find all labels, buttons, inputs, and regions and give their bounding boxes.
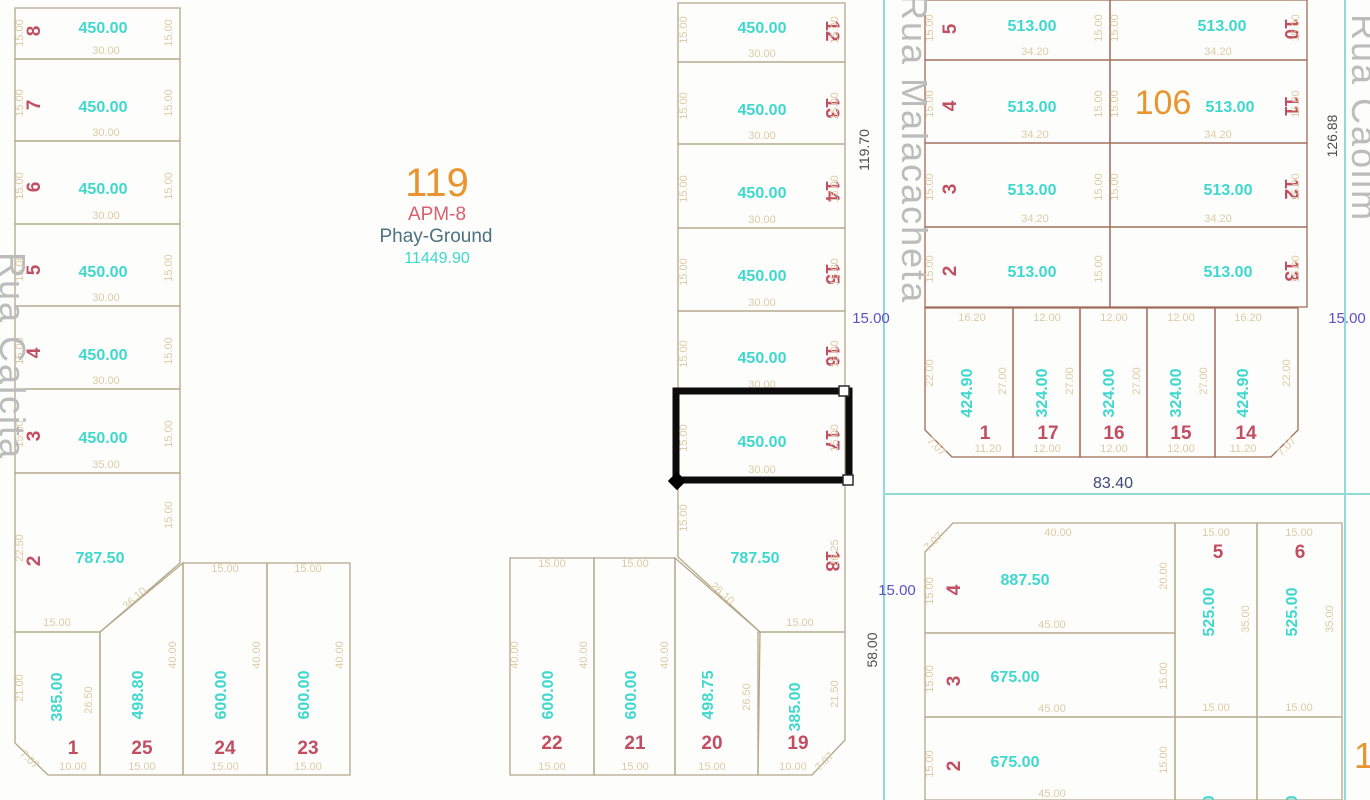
annotation-11970-0: 119.70 [856, 129, 872, 171]
b106-lot11-dim-0: 34.20 [1204, 129, 1232, 141]
rm-lot17-dim-2: 12.00 [1033, 443, 1061, 455]
rb-lot6-dim-0: 15.00 [1285, 527, 1313, 539]
rm-lot14-area-value: 424.90 [1235, 368, 1252, 417]
annotation-5800-1: 58.00 [864, 632, 880, 667]
b119-lot13-dim-2: 15.00 [829, 92, 841, 120]
b119-lot24-dim-2: 40.00 [251, 641, 263, 669]
b119-lot1-dim-3: 7.07 [17, 748, 41, 772]
rb-partial-b-area-value: 525.00 [1284, 795, 1301, 800]
b119-lot25-number: 25 [131, 738, 153, 759]
rb-lot3-dim-0: 15.00 [924, 665, 936, 693]
b119-lot21-dim-2: 40.00 [578, 641, 590, 669]
b119-lot4-area-value: 450.00 [79, 347, 128, 364]
b119-lot25-area-value: 498.80 [130, 670, 147, 719]
block-119-sub-label-0: APM-8 [408, 204, 466, 225]
b106-lot13-dim-0: 15.00 [1290, 255, 1302, 283]
b119-lot18-area-value: 787.50 [731, 550, 780, 567]
b119-lot21-number: 21 [624, 733, 646, 754]
b119-lot3-dim-0: 35.00 [92, 459, 120, 471]
rm-lot1-dim-2: 27.00 [997, 367, 1009, 395]
b119-lot7-dim-2: 15.00 [163, 89, 175, 117]
block-106-number-label: 106 [1135, 84, 1192, 122]
block-119-sub-label-1: Phay-Ground [379, 226, 492, 247]
b119-lot6-dim-1: 15.00 [14, 172, 26, 200]
street-name-0: Rua Calcita [0, 252, 33, 460]
b119-lot3-dim-2: 15.00 [163, 420, 175, 448]
b106-lot2-number: 2 [940, 266, 961, 277]
b119-lot4-dim-0: 30.00 [92, 375, 120, 387]
b106-lot12-dim-2: 15.00 [1290, 173, 1302, 201]
rb-lot2-number: 2 [944, 761, 965, 772]
b106-lot2-dim-1: 15.00 [1093, 255, 1105, 283]
b119-lot17-area-value: 450.00 [738, 434, 787, 451]
rb-lot2-dim-1: 15.00 [1158, 746, 1170, 774]
b119-lot20-dim-0: 15.00 [698, 761, 726, 773]
rm-lot16-number: 16 [1103, 423, 1124, 444]
rm-lot15-area-value: 324.00 [1168, 368, 1185, 417]
b106-lot12-dim-0: 34.20 [1204, 213, 1232, 225]
b119-lot7-dim-0: 30.00 [92, 127, 120, 139]
rb-lot6-area-value: 525.00 [1284, 587, 1301, 636]
rb-lot3-area-value: 675.00 [991, 669, 1040, 686]
rb-lot3-dim-2: 45.00 [1038, 703, 1066, 715]
b106-lot10-dim-2: 15.00 [1290, 14, 1302, 42]
b106-lot4-area-value: 513.00 [1008, 99, 1057, 116]
b119-lot24-dim-1: 15.00 [211, 761, 239, 773]
rb-lot2-dim-2: 45.00 [1038, 788, 1066, 800]
b119-lot19-dim-1: 21.50 [829, 680, 841, 708]
rb-lot5-area-value: 525.00 [1201, 587, 1218, 636]
b119-lot14-dim-1: 15.00 [678, 175, 690, 203]
b119-lot24-number: 24 [214, 738, 236, 759]
b119-lot13-area-value: 450.00 [738, 102, 787, 119]
b119-lot23-dim-0: 15.00 [294, 563, 322, 575]
b119-lot19-area-value: 385.00 [787, 682, 804, 731]
b119-lot20-dim-1: 40.00 [659, 641, 671, 669]
b119-lot20-dim-2: 26.50 [741, 683, 753, 711]
rm-lot17-area-value: 324.00 [1034, 368, 1051, 417]
rm-lot16-area-value: 324.00 [1101, 368, 1118, 417]
b119-lot2-dim-1: 15.00 [163, 501, 175, 529]
b106-lot13-area-value: 513.00 [1204, 264, 1253, 281]
rb-lot5-number: 5 [1213, 542, 1224, 563]
rb-lot6-number: 6 [1295, 542, 1306, 563]
b106-lot10-area-value: 513.00 [1198, 18, 1247, 35]
rb-lot4-area-value: 887.50 [1001, 572, 1050, 589]
block-119-number-label: 119 [405, 161, 469, 205]
rb-lot2-dim-0: 15.00 [924, 750, 936, 778]
b119-lot1-dim-0: 21.00 [14, 674, 26, 702]
annotation-1500-4: 15.00 [1328, 310, 1366, 327]
b119-lot6-number: 6 [24, 182, 45, 193]
b119-lot19-dim-2: 7.07 [813, 750, 837, 774]
rm-lot16-dim-1: 27.00 [1131, 367, 1143, 395]
b119-lot2-number: 2 [24, 556, 45, 567]
b119-lot22-dim-2: 40.00 [509, 641, 521, 669]
b119-lot22-area-value: 600.00 [540, 670, 557, 719]
annotation-1500-3: 15.00 [852, 310, 890, 327]
rm-lot17-dim-0: 12.00 [1033, 312, 1061, 324]
b119-lot2-dim-3: 15.00 [43, 617, 71, 629]
b119-lot6-dim-2: 15.00 [163, 172, 175, 200]
rb-partial-b[interactable] [1257, 717, 1342, 800]
rm-lot1-dim-3: 11.20 [975, 443, 1002, 455]
rm-lot15-number: 15 [1170, 423, 1192, 444]
b106-lot10-dim-1: 15.00 [1109, 14, 1121, 42]
b119-lot12-dim-2: 15.00 [829, 16, 841, 44]
rm-lot15-dim-1: 27.00 [1198, 367, 1210, 395]
b106-lot11-dim-1: 15.00 [1109, 90, 1121, 118]
b119-lot19-dim-0: 10.00 [779, 761, 807, 773]
b119-lot8-number: 8 [24, 26, 45, 37]
b119-lot25-dim-0: 15.00 [128, 761, 156, 773]
b106-lot3-dim-2: 15.00 [1093, 173, 1105, 201]
b119-lot5-dim-2: 15.00 [163, 254, 175, 282]
b119-lot15-area-value: 450.00 [738, 268, 787, 285]
rm-lot15-dim-2: 12.00 [1167, 443, 1195, 455]
b106-lot4-dim-2: 15.00 [1093, 90, 1105, 118]
rm-lot16-dim-0: 12.00 [1100, 312, 1128, 324]
b119-lot21-area-value: 600.00 [623, 670, 640, 719]
b119-lot6-dim-0: 30.00 [92, 210, 120, 222]
b119-lot15-dim-1: 15.00 [678, 258, 690, 286]
b119-lot7-dim-1: 15.00 [14, 89, 26, 117]
b106-lot3-number: 3 [940, 184, 961, 195]
selection-handle-square-1[interactable] [843, 475, 853, 485]
b119-lot25-dim-1: 40.00 [167, 641, 179, 669]
b119-lot13-dim-1: 15.00 [678, 92, 690, 120]
b106-lot5-dim-0: 34.20 [1021, 46, 1049, 58]
b119-lot14-dim-2: 15.00 [829, 175, 841, 203]
rm-lot1-number: 1 [980, 423, 991, 444]
b106-lot4-dim-0: 34.20 [1021, 129, 1049, 141]
rm-lot14-dim-2: 11.20 [1230, 443, 1257, 455]
selection-handle-square-0[interactable] [839, 386, 849, 396]
b119-lot12-dim-1: 15.00 [678, 16, 690, 44]
b119-lot1-dim-1: 26.50 [83, 686, 95, 714]
b106-lot4-number: 4 [940, 100, 961, 111]
b119-lot12-area-value: 450.00 [738, 20, 787, 37]
b119-lot5-area-value: 450.00 [79, 264, 128, 281]
b106-lot11-area-value: 513.00 [1206, 99, 1255, 116]
b119-lot18-dim-0: 15.00 [678, 504, 690, 532]
b119-lot16-area-value: 450.00 [738, 350, 787, 367]
b119-lot20-area-value: 498.75 [700, 670, 717, 719]
b119-lot23-number: 23 [297, 738, 318, 759]
b119-lot6-area-value: 450.00 [79, 181, 128, 198]
b119-lot18-dim-3: 15.00 [786, 617, 814, 629]
b106-lot5-number: 5 [940, 23, 961, 34]
b119-lot20-number: 20 [701, 733, 722, 754]
rm-lot1-area-value: 424.90 [959, 368, 976, 417]
rm-lot1-dim-0: 16.20 [958, 312, 986, 324]
b106-lot10-dim-0: 34.20 [1204, 46, 1232, 58]
b119-lot2-dim-0: 22.50 [14, 534, 26, 562]
b106-lot5-area-value: 513.00 [1008, 18, 1057, 35]
rb-lot5-dim-1: 35.00 [1240, 605, 1252, 633]
rm-lot17-number: 17 [1037, 423, 1058, 444]
b119-lot17-dim-2: 15.00 [829, 424, 841, 452]
b119-lot8-dim-0: 30.00 [92, 45, 120, 57]
annotation-8340-6: 83.40 [1093, 475, 1133, 492]
b119-lot7-area-value: 450.00 [79, 99, 128, 116]
b119-lot24-area-value: 600.00 [213, 670, 230, 719]
b119-lot22-dim-0: 15.00 [538, 558, 566, 570]
street-name-2: Rua Caolim [1344, 14, 1370, 222]
b119-lot16-dim-2: 15.00 [829, 340, 841, 368]
block-119-sub-label-2: 11449.90 [404, 250, 470, 267]
b119-lot3-area-value: 450.00 [79, 430, 128, 447]
rb-lot2-area-value: 675.00 [991, 754, 1040, 771]
rb-lot5-dim-2: 15.00 [1202, 702, 1230, 714]
b119-lot2-dim-2: 36.10 [121, 585, 149, 612]
b119-lot1-number: 1 [68, 738, 79, 759]
street-name-1: Rua Malacacheta [894, 0, 935, 304]
b119-lot5-dim-0: 30.00 [92, 292, 120, 304]
b119-lot2-area-value: 787.50 [76, 550, 125, 567]
b119-lot16-dim-1: 15.00 [678, 340, 690, 368]
rm-lot15-dim-0: 12.00 [1167, 312, 1195, 324]
rb-lot4-dim-3: 20.00 [1158, 562, 1170, 590]
rb-lot3-dim-1: 15.00 [1158, 662, 1170, 690]
b119-lot23-area-value: 600.00 [296, 670, 313, 719]
block-partial-right-number-label: 1 [1354, 735, 1370, 776]
b119-lot19-number: 19 [787, 733, 808, 754]
b119-lot23-dim-1: 15.00 [294, 761, 322, 773]
b106-lot11-dim-2: 15.00 [1290, 90, 1302, 118]
rb-lot4-dim-4: 45.00 [1038, 619, 1066, 631]
b119-lot1-area-value: 385.00 [49, 672, 66, 721]
b119-lot15-dim-0: 30.00 [748, 297, 776, 309]
b106-lot12-dim-1: 15.00 [1109, 173, 1121, 201]
rb-lot3-number: 3 [944, 676, 965, 687]
b106-lot12-area-value: 513.00 [1204, 182, 1253, 199]
rb-lot4-dim-2: 15.00 [924, 577, 936, 605]
b119-lot22-dim-1: 15.00 [538, 761, 566, 773]
b119-lot7-number: 7 [24, 100, 45, 111]
rm-lot14-dim-0: 16.20 [1234, 312, 1262, 324]
b119-lot22-number: 22 [541, 733, 562, 754]
rb-partial-a-area-value: 525.00 [1201, 795, 1218, 800]
b119-lot8-area-value: 450.00 [79, 20, 128, 37]
plan-svg: 450.00830.0015.0015.00450.00730.0015.001… [0, 0, 1370, 800]
rm-lot14-number: 14 [1235, 423, 1257, 444]
b119-lot13-dim-0: 30.00 [748, 130, 776, 142]
annotation-1500-5: 15.00 [878, 582, 916, 599]
rm-lot14-dim-1: 22.00 [1281, 359, 1293, 387]
b119-lot21-dim-1: 15.00 [621, 761, 649, 773]
rb-lot5-dim-0: 15.00 [1202, 527, 1230, 539]
rb-lot6-dim-1: 35.00 [1324, 605, 1336, 633]
b106-lot2-area-value: 513.00 [1008, 264, 1057, 281]
b119-lot21-dim-0: 15.00 [621, 558, 649, 570]
rm-lot16-dim-2: 12.00 [1100, 443, 1128, 455]
rm-lot1-dim-1: 22.00 [924, 359, 936, 387]
b106-lot3-dim-0: 34.20 [1021, 213, 1049, 225]
b119-lot8-dim-1: 15.00 [14, 19, 26, 47]
b119-lot15-dim-2: 15.00 [829, 258, 841, 286]
rm-lot17-dim-1: 27.00 [1064, 367, 1076, 395]
b119-lot12-dim-0: 30.00 [748, 48, 776, 60]
b119-lot18-dim-2: 26.10 [708, 580, 736, 607]
annotation-12688-2: 126.88 [1324, 114, 1340, 157]
b119-lot17-dim-0: 30.00 [748, 464, 776, 476]
b119-lot14-dim-0: 30.00 [748, 214, 776, 226]
b119-lot18-dim-1: 26.25 [829, 539, 841, 567]
rm-lot14-dim-3: 7.07 [1275, 435, 1299, 459]
b119-lot17-dim-1: 15.00 [678, 424, 690, 452]
rm-lot1-dim-4: 7.07 [924, 435, 948, 459]
b106-lot3-area-value: 513.00 [1008, 182, 1057, 199]
b119-lot8-dim-2: 15.00 [163, 19, 175, 47]
plan-canvas: 450.00830.0015.0015.00450.00730.0015.001… [0, 0, 1370, 800]
b119-lot4-dim-2: 15.00 [163, 337, 175, 365]
b119-lot14-area-value: 450.00 [738, 185, 787, 202]
rb-lot4-dim-0: 40.00 [1044, 527, 1072, 539]
b119-lot23-dim-2: 40.00 [334, 641, 346, 669]
rb-lot6-dim-2: 15.00 [1285, 702, 1313, 714]
selection-handle-diamond[interactable] [668, 472, 686, 490]
b119-lot24-dim-0: 15.00 [211, 563, 239, 575]
rb-partial-a[interactable] [1175, 717, 1257, 800]
rb-lot4-number: 4 [944, 584, 965, 595]
b106-lot5-dim-2: 15.00 [1093, 14, 1105, 42]
b119-lot1-dim-2: 10.00 [59, 761, 87, 773]
rb-lot4[interactable] [925, 523, 1175, 633]
